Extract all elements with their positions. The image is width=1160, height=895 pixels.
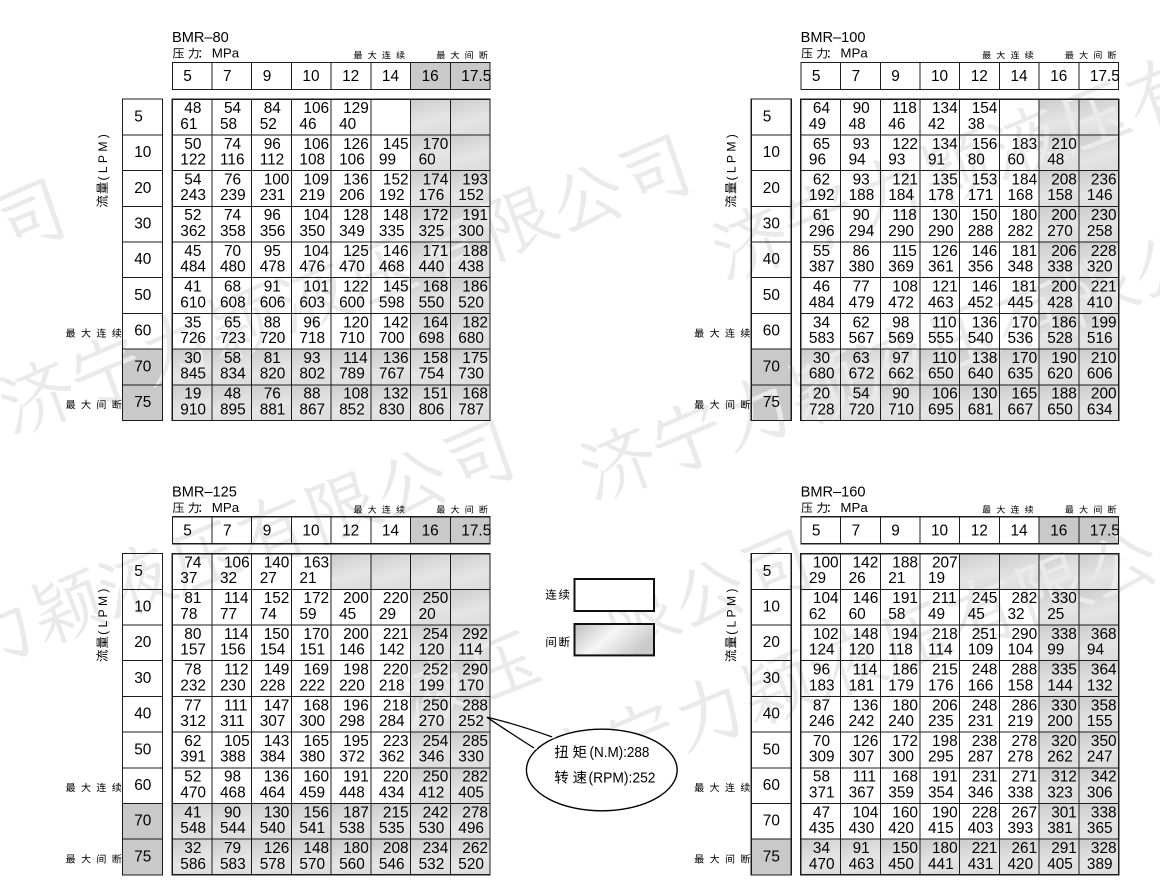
- svg-text:40: 40: [339, 116, 356, 133]
- svg-text:157: 157: [180, 642, 206, 659]
- svg-text:174: 174: [423, 172, 449, 189]
- svg-text:145: 145: [383, 136, 409, 153]
- svg-text:146: 146: [339, 642, 365, 659]
- svg-text:183: 183: [809, 677, 835, 694]
- svg-text:90: 90: [853, 207, 870, 224]
- svg-text:221: 221: [383, 626, 409, 643]
- svg-text:292: 292: [462, 626, 488, 643]
- svg-text:620: 620: [1047, 366, 1073, 383]
- svg-text:114: 114: [224, 590, 249, 607]
- svg-text:330: 330: [1051, 590, 1077, 607]
- svg-text:106: 106: [303, 100, 329, 117]
- svg-text:700: 700: [379, 330, 405, 347]
- svg-text:104: 104: [853, 804, 879, 821]
- svg-text:25: 25: [1047, 606, 1064, 623]
- svg-text:81: 81: [264, 350, 281, 367]
- svg-text:192: 192: [379, 187, 405, 204]
- svg-text:45: 45: [184, 243, 201, 260]
- svg-text:38: 38: [968, 116, 985, 133]
- svg-text:114: 114: [928, 642, 953, 659]
- svg-text:106: 106: [224, 555, 250, 572]
- svg-text:148: 148: [853, 626, 879, 643]
- svg-text:606: 606: [260, 294, 286, 311]
- svg-text:12: 12: [342, 522, 359, 539]
- svg-text:5: 5: [763, 108, 772, 125]
- svg-text:74: 74: [184, 555, 202, 572]
- svg-text:61: 61: [813, 207, 830, 224]
- svg-text:667: 667: [1008, 401, 1034, 418]
- svg-text:367: 367: [849, 784, 875, 801]
- svg-text:14: 14: [382, 68, 400, 85]
- svg-text:99: 99: [1047, 642, 1064, 659]
- svg-text:9: 9: [891, 522, 900, 539]
- svg-text:540: 540: [260, 820, 286, 837]
- svg-text:176: 176: [928, 677, 954, 694]
- svg-text:114: 114: [853, 662, 878, 679]
- svg-text:207: 207: [932, 555, 958, 572]
- svg-text:96: 96: [809, 152, 826, 169]
- svg-text:830: 830: [379, 401, 405, 418]
- svg-text:218: 218: [932, 626, 958, 643]
- svg-text:165: 165: [1012, 386, 1038, 403]
- svg-text:434: 434: [379, 784, 405, 801]
- svg-text:845: 845: [180, 366, 206, 383]
- svg-text:50: 50: [763, 741, 780, 758]
- svg-text:9: 9: [891, 68, 900, 85]
- svg-text:359: 359: [888, 784, 914, 801]
- svg-text:60: 60: [134, 323, 151, 340]
- svg-text:240: 240: [888, 713, 914, 730]
- svg-text:540: 540: [968, 330, 994, 347]
- svg-text:191: 191: [462, 207, 488, 224]
- svg-text:191: 191: [892, 590, 918, 607]
- svg-text:10: 10: [134, 144, 151, 161]
- svg-text:48: 48: [184, 100, 201, 117]
- svg-text:158: 158: [423, 350, 449, 367]
- svg-text:200: 200: [1091, 386, 1117, 403]
- svg-text:58: 58: [220, 116, 237, 133]
- svg-text:245: 245: [972, 590, 998, 607]
- svg-text:16: 16: [422, 68, 439, 85]
- svg-text:200: 200: [343, 590, 369, 607]
- svg-text:294: 294: [849, 223, 875, 240]
- svg-text:46: 46: [299, 116, 316, 133]
- svg-text:151: 151: [423, 386, 449, 403]
- svg-text:546: 546: [379, 856, 405, 873]
- svg-text:93: 93: [888, 152, 905, 169]
- svg-text:17.5: 17.5: [461, 522, 491, 539]
- svg-text:40: 40: [763, 706, 780, 723]
- svg-text:301: 301: [1051, 804, 1077, 821]
- svg-text:296: 296: [809, 223, 835, 240]
- svg-text:156: 156: [303, 804, 329, 821]
- svg-text:32: 32: [1008, 606, 1025, 623]
- svg-text:16: 16: [1050, 522, 1067, 539]
- svg-text:754: 754: [419, 366, 445, 383]
- svg-text:35: 35: [184, 314, 201, 331]
- svg-text:168: 168: [303, 697, 329, 714]
- svg-text:381: 381: [1047, 820, 1073, 837]
- svg-text:218: 218: [379, 677, 405, 694]
- svg-text:34: 34: [813, 840, 831, 857]
- svg-text:262: 262: [462, 840, 488, 857]
- svg-text:42: 42: [928, 116, 945, 133]
- svg-text:74: 74: [260, 606, 278, 623]
- svg-text:538: 538: [339, 820, 365, 837]
- svg-text:14: 14: [1011, 68, 1029, 85]
- svg-text:54: 54: [224, 100, 242, 117]
- svg-text:20: 20: [763, 634, 780, 651]
- svg-text:48: 48: [224, 386, 241, 403]
- svg-text:90: 90: [853, 100, 870, 117]
- svg-text:146: 146: [1087, 187, 1113, 204]
- svg-text:583: 583: [220, 856, 246, 873]
- svg-text:254: 254: [423, 733, 449, 750]
- svg-text:195: 195: [343, 733, 369, 750]
- svg-text:463: 463: [928, 294, 954, 311]
- svg-text:14: 14: [1011, 522, 1029, 539]
- svg-text:210: 210: [1091, 350, 1117, 367]
- svg-text:300: 300: [888, 749, 914, 766]
- svg-text:90: 90: [892, 386, 909, 403]
- svg-text:286: 286: [1012, 697, 1038, 714]
- svg-text:555: 555: [928, 330, 954, 347]
- svg-text:528: 528: [1047, 330, 1073, 347]
- svg-text:235: 235: [928, 713, 954, 730]
- svg-text:215: 215: [932, 662, 958, 679]
- svg-text:178: 178: [928, 187, 954, 204]
- svg-text:412: 412: [419, 784, 445, 801]
- svg-text:802: 802: [299, 366, 325, 383]
- svg-text:158: 158: [1047, 187, 1073, 204]
- svg-text:52: 52: [260, 116, 277, 133]
- svg-text:111: 111: [224, 697, 247, 714]
- svg-text:50: 50: [184, 136, 201, 153]
- svg-text:267: 267: [1012, 804, 1038, 821]
- svg-text:130: 130: [932, 207, 958, 224]
- svg-text:600: 600: [339, 294, 365, 311]
- svg-text:806: 806: [419, 401, 445, 418]
- svg-text:40: 40: [134, 706, 151, 723]
- svg-text:12: 12: [342, 68, 359, 85]
- svg-text:372: 372: [339, 749, 365, 766]
- svg-text:145: 145: [383, 279, 409, 296]
- svg-text:484: 484: [809, 294, 835, 311]
- svg-text:698: 698: [419, 330, 445, 347]
- svg-text:79: 79: [224, 840, 241, 857]
- svg-text:228: 228: [260, 677, 286, 694]
- svg-text:420: 420: [1008, 856, 1034, 873]
- svg-text:560: 560: [339, 856, 365, 873]
- svg-text:440: 440: [419, 259, 445, 276]
- svg-text:200: 200: [343, 626, 369, 643]
- svg-text:720: 720: [260, 330, 286, 347]
- svg-text:104: 104: [813, 590, 839, 607]
- svg-text:365: 365: [1087, 820, 1113, 837]
- svg-text:496: 496: [458, 820, 484, 837]
- svg-text:126: 126: [264, 840, 290, 857]
- svg-text:60: 60: [763, 323, 780, 340]
- svg-text:364: 364: [1091, 662, 1117, 679]
- svg-text:290: 290: [1012, 626, 1038, 643]
- svg-text:164: 164: [423, 314, 449, 331]
- svg-text:32: 32: [184, 840, 201, 857]
- svg-text:520: 520: [458, 294, 484, 311]
- svg-text:90: 90: [224, 804, 241, 821]
- svg-text:307: 307: [849, 749, 875, 766]
- svg-text:356: 356: [260, 223, 286, 240]
- svg-text:146: 146: [972, 279, 998, 296]
- svg-text:298: 298: [339, 713, 365, 730]
- svg-text:160: 160: [303, 769, 329, 786]
- svg-text:19: 19: [928, 570, 945, 587]
- svg-text:288: 288: [968, 223, 994, 240]
- svg-text:97: 97: [892, 350, 909, 367]
- svg-text:726: 726: [180, 330, 206, 347]
- svg-text:165: 165: [303, 733, 329, 750]
- svg-text:254: 254: [423, 626, 449, 643]
- svg-text:730: 730: [458, 366, 484, 383]
- svg-text:55: 55: [813, 243, 830, 260]
- svg-text:312: 312: [1051, 769, 1077, 786]
- svg-text:251: 251: [972, 626, 998, 643]
- svg-text:834: 834: [220, 366, 246, 383]
- svg-text:550: 550: [419, 294, 445, 311]
- svg-text:196: 196: [343, 697, 369, 714]
- svg-text:718: 718: [299, 330, 325, 347]
- svg-text:250: 250: [423, 769, 449, 786]
- svg-text:112: 112: [224, 662, 249, 679]
- svg-text:70: 70: [134, 358, 151, 375]
- svg-text:166: 166: [968, 677, 994, 694]
- svg-text:723: 723: [220, 330, 246, 347]
- svg-text:789: 789: [339, 366, 365, 383]
- svg-text:5: 5: [763, 563, 772, 580]
- svg-text:BMR–125: BMR–125: [172, 484, 237, 500]
- svg-text:48: 48: [849, 116, 866, 133]
- svg-text:520: 520: [458, 856, 484, 873]
- svg-text:176: 176: [419, 187, 445, 204]
- svg-text:MPa: MPa: [212, 45, 240, 60]
- svg-text:220: 220: [383, 662, 409, 679]
- svg-text:BMR–160: BMR–160: [801, 484, 866, 500]
- svg-text:236: 236: [1091, 172, 1117, 189]
- svg-text:211: 211: [932, 590, 957, 607]
- svg-text:168: 168: [892, 769, 918, 786]
- svg-text:114: 114: [458, 642, 483, 659]
- svg-text:20: 20: [419, 606, 436, 623]
- svg-text:193: 193: [462, 172, 488, 189]
- svg-text:68: 68: [224, 279, 241, 296]
- svg-text:21: 21: [299, 570, 316, 587]
- svg-text:356: 356: [968, 259, 994, 276]
- svg-text:50: 50: [763, 287, 780, 304]
- svg-text:58: 58: [224, 350, 241, 367]
- svg-text:80: 80: [184, 626, 201, 643]
- svg-text:186: 186: [1051, 314, 1077, 331]
- svg-text:132: 132: [1087, 677, 1113, 694]
- svg-text:142: 142: [853, 555, 879, 572]
- svg-text:150: 150: [972, 207, 998, 224]
- svg-text:186: 186: [462, 279, 488, 296]
- svg-text:338: 338: [1008, 784, 1034, 801]
- svg-text:250: 250: [423, 697, 449, 714]
- svg-text:148: 148: [303, 840, 329, 857]
- svg-text:156: 156: [220, 642, 246, 659]
- svg-text:64: 64: [813, 100, 831, 117]
- svg-text:118: 118: [892, 100, 917, 117]
- svg-text:323: 323: [1047, 784, 1073, 801]
- svg-text:190: 190: [932, 804, 958, 821]
- svg-text:146: 146: [853, 590, 879, 607]
- svg-text:5: 5: [183, 68, 192, 85]
- svg-text:168: 168: [1008, 187, 1034, 204]
- svg-text:108: 108: [343, 386, 369, 403]
- svg-text:479: 479: [849, 294, 875, 311]
- svg-text:606: 606: [1087, 366, 1113, 383]
- svg-text:198: 198: [343, 662, 369, 679]
- svg-text:431: 431: [968, 856, 994, 873]
- svg-text:10: 10: [302, 522, 319, 539]
- svg-text:122: 122: [892, 136, 918, 153]
- svg-text:391: 391: [180, 749, 206, 766]
- svg-text:368: 368: [1091, 626, 1117, 643]
- svg-text:74: 74: [224, 136, 242, 153]
- svg-text:20: 20: [763, 180, 780, 197]
- svg-text:136: 136: [343, 172, 369, 189]
- svg-text:415: 415: [928, 820, 954, 837]
- svg-text:MPa: MPa: [212, 500, 240, 515]
- svg-text:468: 468: [220, 784, 246, 801]
- svg-text:30: 30: [134, 670, 151, 687]
- svg-text:126: 126: [853, 733, 879, 750]
- svg-text:96: 96: [264, 136, 281, 153]
- svg-text:21: 21: [888, 570, 905, 587]
- svg-text:163: 163: [303, 555, 329, 572]
- svg-text:98: 98: [224, 769, 241, 786]
- svg-text:132: 132: [383, 386, 409, 403]
- svg-text:387: 387: [809, 259, 835, 276]
- svg-text:470: 470: [339, 259, 365, 276]
- svg-text:88: 88: [264, 314, 281, 331]
- svg-text:60: 60: [419, 152, 436, 169]
- svg-text:112: 112: [260, 152, 285, 169]
- svg-text:787: 787: [458, 401, 484, 418]
- svg-text:231: 231: [260, 187, 286, 204]
- svg-text:307: 307: [260, 713, 286, 730]
- svg-text:199: 199: [419, 677, 445, 694]
- svg-text:134: 134: [932, 100, 958, 117]
- svg-text:170: 170: [303, 626, 329, 643]
- svg-text:448: 448: [339, 784, 365, 801]
- svg-text:34: 34: [813, 314, 831, 331]
- svg-text:335: 335: [1051, 662, 1077, 679]
- svg-text:168: 168: [462, 386, 488, 403]
- svg-text:122: 122: [343, 279, 369, 296]
- svg-text:30: 30: [134, 216, 151, 233]
- svg-text:852: 852: [339, 401, 365, 418]
- svg-text:40: 40: [763, 251, 780, 268]
- svg-text:138: 138: [972, 350, 998, 367]
- svg-text:76: 76: [224, 172, 241, 189]
- svg-text:188: 188: [892, 555, 918, 572]
- svg-text:484: 484: [180, 259, 206, 276]
- svg-text:104: 104: [303, 243, 329, 260]
- svg-text:32: 32: [220, 570, 237, 587]
- svg-text:62: 62: [809, 606, 826, 623]
- svg-text:58: 58: [888, 606, 905, 623]
- svg-text:384: 384: [260, 749, 286, 766]
- svg-text:106: 106: [339, 152, 365, 169]
- svg-text:20: 20: [134, 180, 151, 197]
- svg-text:122: 122: [180, 152, 206, 169]
- svg-text:149: 149: [264, 662, 290, 679]
- svg-text:168: 168: [423, 279, 449, 296]
- svg-text:143: 143: [264, 733, 290, 750]
- svg-text:14: 14: [382, 522, 400, 539]
- svg-text:206: 206: [339, 187, 365, 204]
- svg-text:50: 50: [134, 287, 151, 304]
- svg-text:17.5: 17.5: [1090, 68, 1120, 85]
- svg-text:29: 29: [379, 606, 396, 623]
- svg-text:129: 129: [343, 100, 369, 117]
- svg-text:84: 84: [264, 100, 282, 117]
- svg-text:49: 49: [928, 606, 945, 623]
- svg-text:124: 124: [809, 642, 835, 659]
- svg-text:94: 94: [1087, 642, 1105, 659]
- svg-text:136: 136: [264, 769, 290, 786]
- svg-text:108: 108: [299, 152, 325, 169]
- svg-text:152: 152: [383, 172, 409, 189]
- svg-text:681: 681: [968, 401, 994, 418]
- svg-text:532: 532: [419, 856, 445, 873]
- svg-text:49: 49: [809, 116, 826, 133]
- svg-text:380: 380: [849, 259, 875, 276]
- svg-text:219: 219: [299, 187, 325, 204]
- svg-text:98: 98: [892, 314, 909, 331]
- svg-text:9: 9: [263, 522, 272, 539]
- svg-text:60: 60: [849, 606, 866, 623]
- svg-text:320: 320: [1087, 259, 1113, 276]
- svg-text:80: 80: [968, 152, 985, 169]
- svg-text:94: 94: [849, 152, 867, 169]
- svg-text:45: 45: [968, 606, 985, 623]
- svg-text:134: 134: [932, 136, 958, 153]
- svg-text:(LPM): (LPM): [724, 585, 738, 635]
- svg-text:208: 208: [1051, 172, 1077, 189]
- svg-text:153: 153: [972, 172, 998, 189]
- svg-text:530: 530: [419, 820, 445, 837]
- svg-text:99: 99: [379, 152, 396, 169]
- svg-text:20: 20: [134, 634, 151, 651]
- svg-text:242: 242: [849, 713, 875, 730]
- svg-text:128: 128: [343, 207, 369, 224]
- svg-text:478: 478: [260, 259, 286, 276]
- svg-text:170: 170: [423, 136, 449, 153]
- svg-text:242: 242: [423, 804, 449, 821]
- svg-text:7: 7: [852, 68, 861, 85]
- svg-text:27: 27: [260, 570, 277, 587]
- svg-text:342: 342: [1091, 769, 1117, 786]
- svg-text:362: 362: [379, 749, 405, 766]
- svg-text:290: 290: [888, 223, 914, 240]
- svg-text:261: 261: [1012, 840, 1038, 857]
- svg-text:170: 170: [1012, 350, 1038, 367]
- svg-text:567: 567: [849, 330, 875, 347]
- svg-text:480: 480: [220, 259, 246, 276]
- svg-text:150: 150: [264, 626, 290, 643]
- svg-text:895: 895: [220, 401, 246, 418]
